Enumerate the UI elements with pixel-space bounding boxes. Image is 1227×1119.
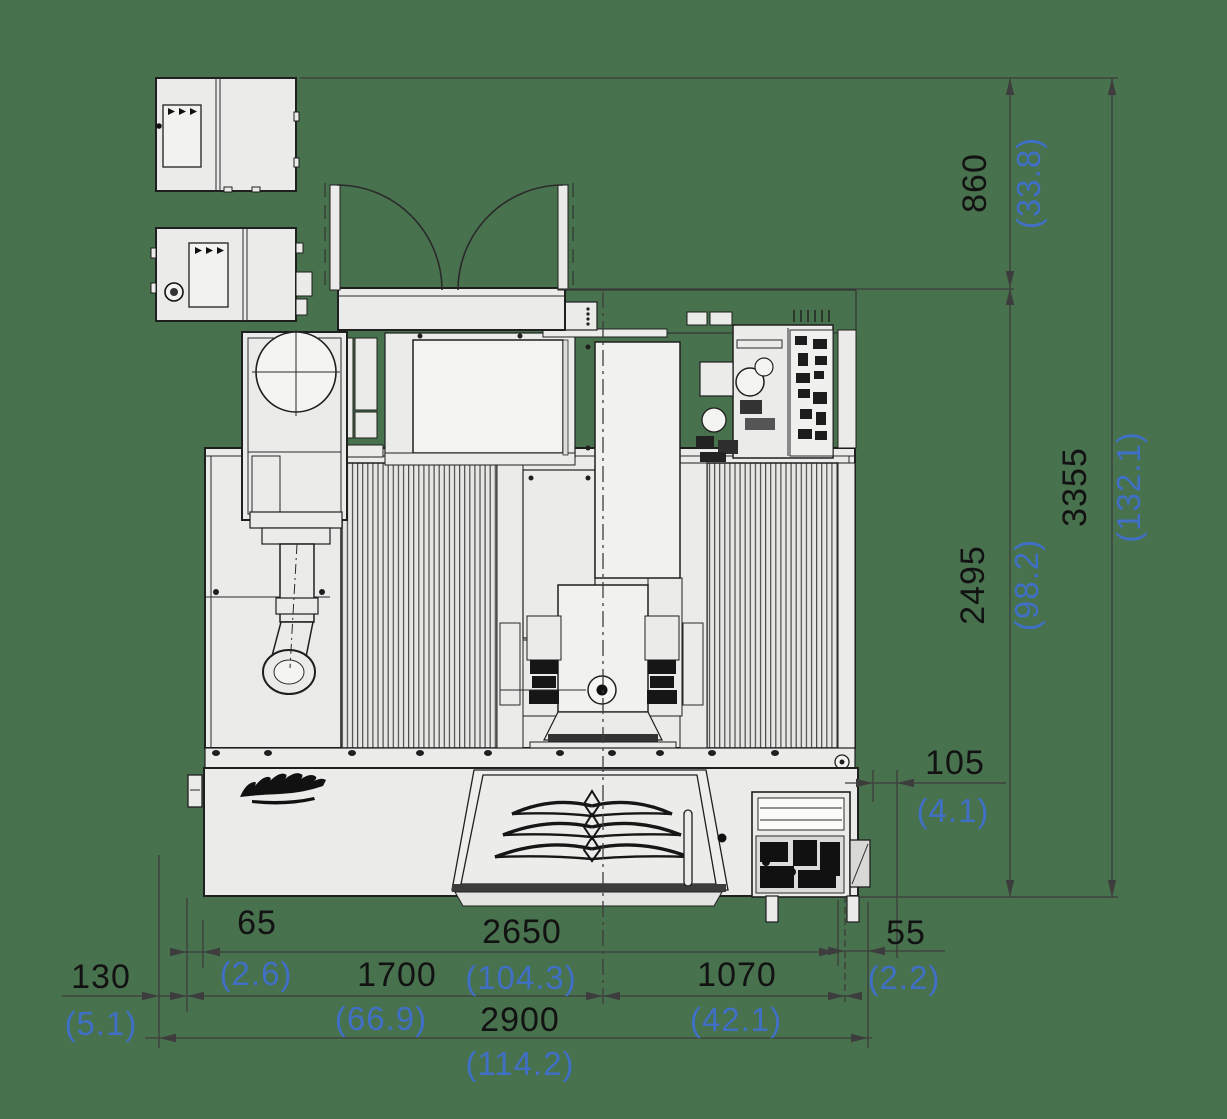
base-left-tab — [188, 775, 202, 807]
dim-total-depth-mm: 3355 — [1056, 447, 1094, 527]
dim-body-depth-inch: (98.2) — [1008, 539, 1045, 631]
dim-total-width-inch: (114.2) — [465, 1045, 574, 1082]
machine-drawing: 860 (33.8) 2495 (98.2) 3355 (132.1) 105 … — [0, 0, 1227, 1119]
door-handle — [684, 810, 692, 886]
dim-door-open-depth-mm: 860 — [956, 153, 994, 213]
door-knob — [718, 834, 727, 843]
right-accordion-cover — [707, 463, 838, 748]
dim-rear-offset-mm: 105 — [925, 744, 985, 782]
dim-left-outer-inch: (5.1) — [65, 1005, 138, 1042]
dim-door-open-width-mm: 2650 — [482, 913, 562, 951]
dim-left-inner-mm: 65 — [237, 904, 277, 942]
dim-right-offset-inch: (2.2) — [868, 959, 941, 996]
dim-left-outer-mm: 130 — [71, 958, 131, 996]
dim-rear-offset-inch: (4.1) — [917, 792, 990, 829]
dim-left-width-inch: (66.9) — [335, 1000, 427, 1037]
base-apron — [455, 892, 722, 906]
top-cover — [338, 288, 565, 330]
dim-right-width-mm: 1070 — [697, 956, 777, 994]
dim-door-open-width-inch: (104.3) — [465, 959, 577, 996]
power-cabinet-lower — [151, 228, 312, 321]
base-bolt-band — [205, 748, 855, 769]
dimension-drawing-canvas: 860 (33.8) 2495 (98.2) 3355 (132.1) 105 … — [0, 0, 1227, 1119]
dim-left-width-mm: 1700 — [357, 956, 437, 994]
power-cabinet-upper — [156, 78, 299, 192]
dim-left-inner-inch: (2.6) — [220, 955, 293, 992]
dim-body-depth-mm: 2495 — [954, 545, 992, 625]
dim-right-width-inch: (42.1) — [690, 1001, 782, 1038]
leveling-foot-left — [766, 896, 778, 922]
dim-door-open-depth-inch: (33.8) — [1010, 137, 1047, 229]
leveling-foot-right — [847, 896, 859, 922]
front-door — [461, 775, 716, 884]
dim-total-width-mm: 2900 — [480, 1001, 560, 1039]
dim-total-depth-inch: (132.1) — [1110, 431, 1147, 543]
spindle-column — [586, 342, 681, 578]
left-accordion-cover — [341, 463, 497, 748]
dim-right-offset-mm: 55 — [886, 914, 926, 952]
